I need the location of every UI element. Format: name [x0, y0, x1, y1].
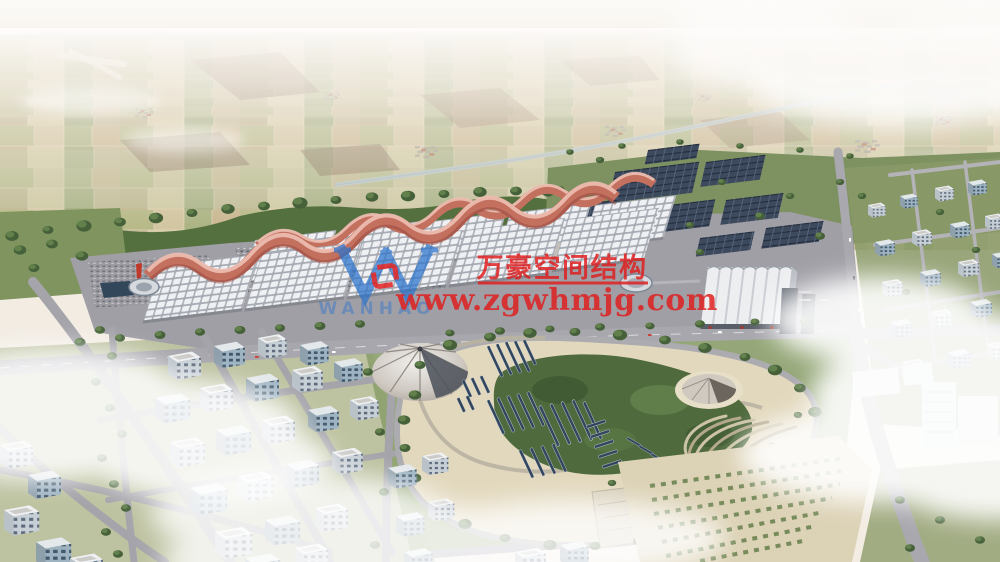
scene-canvas: WANHAO 万豪空间结构 www.zgwhmjg.com [0, 0, 1000, 562]
aerial-rendering: WANHAO 万豪空间结构 www.zgwhmjg.com [0, 0, 1000, 562]
red-banner [136, 263, 142, 280]
company-website: www.zgwhmjg.com [395, 283, 718, 318]
west-oval-entrance [129, 279, 159, 296]
company-name-cn: 万豪空间结构 [477, 252, 648, 284]
small-cone [675, 371, 743, 409]
